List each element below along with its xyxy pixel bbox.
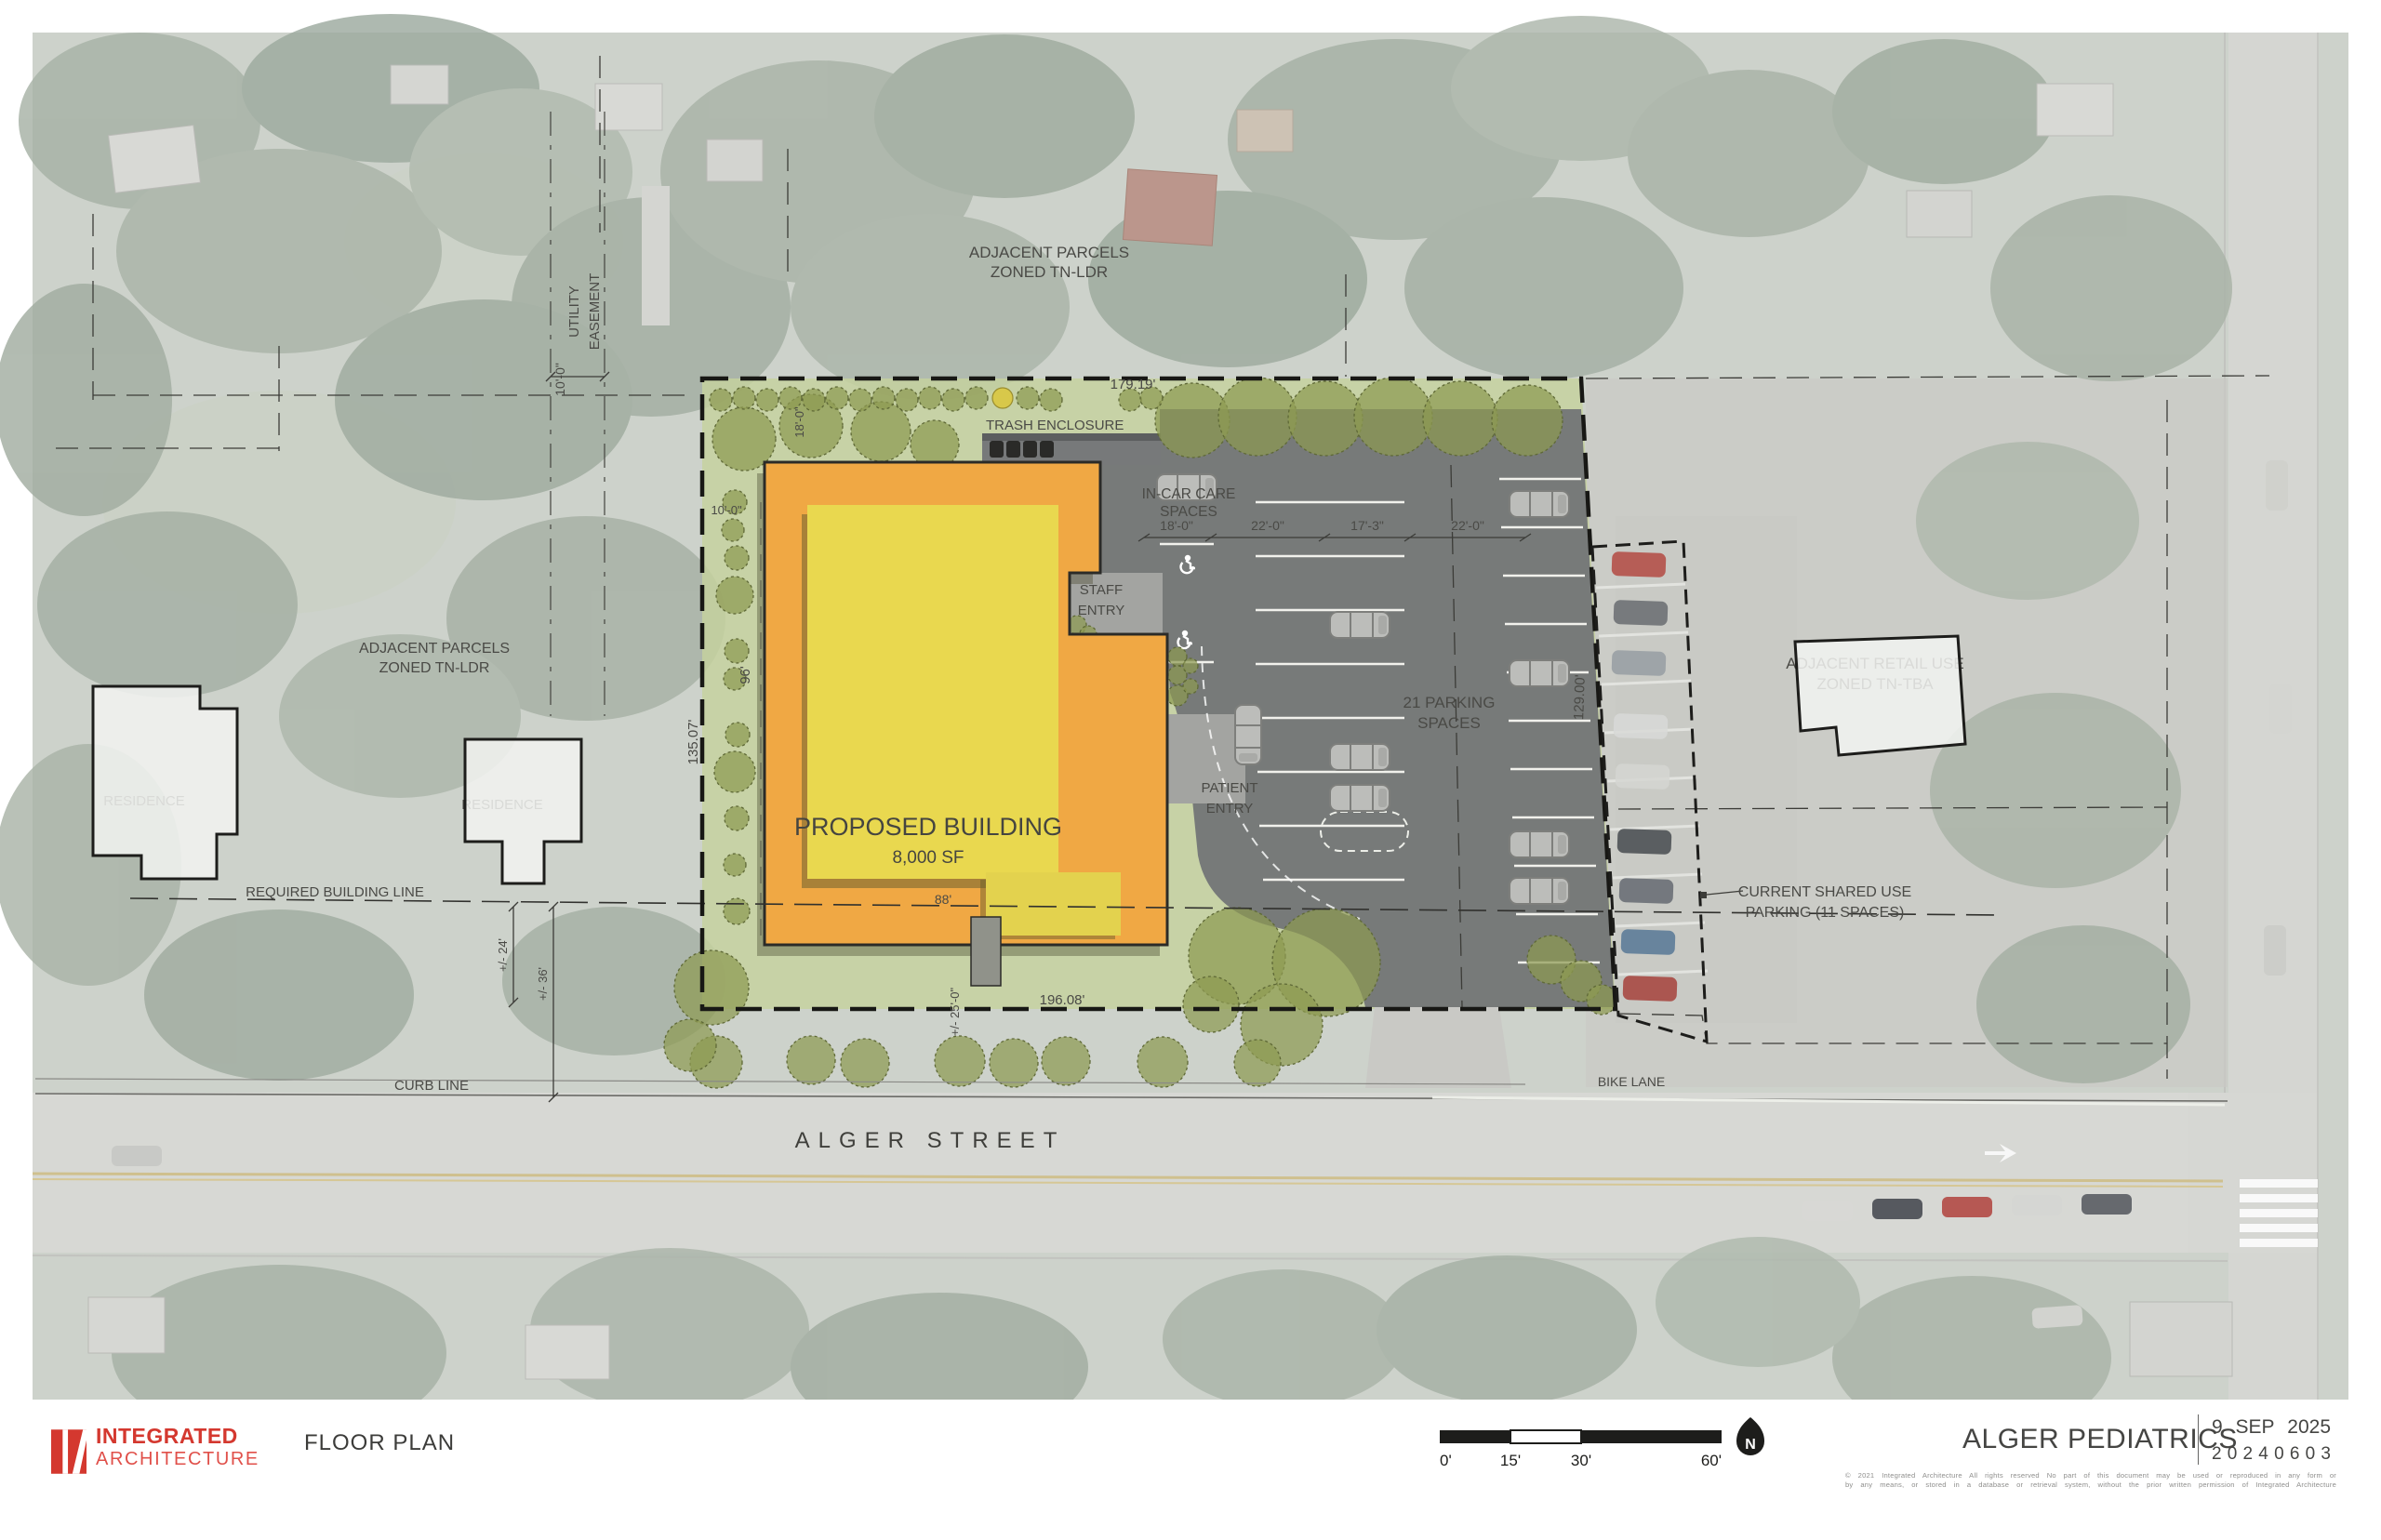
drawing-sheet: ADJACENT PARCELS ZONED TN-LDR UTILITY EA… <box>0 0 2381 1540</box>
dim-building-depth: 96' <box>738 666 753 684</box>
logo-text: INTEGRATED ARCHITECTURE <box>96 1426 259 1468</box>
label-utility-easement-2: EASEMENT <box>587 273 603 351</box>
dim-bottom-boundary: 196.08' <box>1040 992 1085 1008</box>
dim-setback-24: +/- 24' <box>496 938 510 972</box>
dim-street-width: +/- 25'-0" <box>948 987 962 1036</box>
titleblock-divider <box>2198 1414 2199 1465</box>
label-required-building-line: REQUIRED BUILDING LINE <box>246 884 424 900</box>
sheet-title: FLOOR PLAN <box>304 1430 455 1456</box>
copyright-line1: © 2021 Integrated Architecture All right… <box>1845 1471 2336 1480</box>
north-arrow-icon: N <box>1727 1413 1776 1467</box>
label-staff-entry-2: ENTRY <box>1078 603 1125 618</box>
dim-stall-3: 17'-3" <box>1350 518 1384 533</box>
dim-easement-width: 10'-0" <box>552 363 567 396</box>
dim-stall-4: 22'-0" <box>1451 518 1484 533</box>
date-year: 2025 <box>2287 1416 2331 1439</box>
copyright-text: © 2021 Integrated Architecture All right… <box>1845 1471 2336 1491</box>
scale-bar: 0' 15' 30' 60' <box>1439 1423 1736 1479</box>
dim-stall-2: 22'-0" <box>1251 518 1284 533</box>
building-vestibule <box>971 917 1001 986</box>
label-staff-entry-1: STAFF <box>1080 582 1123 598</box>
copyright-line2: by any means, or stored in a database or… <box>1845 1480 2336 1490</box>
hatched-island <box>1321 812 1408 851</box>
site-plan: ADJACENT PARCELS ZONED TN-LDR UTILITY EA… <box>0 0 2381 1400</box>
date-day: 9 <box>2212 1416 2223 1439</box>
label-parking-1: 21 PARKING <box>1403 694 1496 711</box>
title-bar: INTEGRATED ARCHITECTURE FLOOR PLAN 0' 15… <box>0 1400 2381 1540</box>
dim-left-boundary: 135.07' <box>685 719 701 764</box>
label-adjacent-parcels-top-1: ADJACENT PARCELS <box>969 244 1129 261</box>
scale-15: 15' <box>1500 1452 1521 1469</box>
integrated-architecture-logo-icon <box>51 1429 86 1474</box>
label-proposed-building: PROPOSED BUILDING <box>794 813 1062 841</box>
dim-stall-1: 18'-0" <box>1160 518 1193 533</box>
label-alger-street: ALGER STREET <box>795 1128 1066 1153</box>
building-roof-low <box>986 872 1121 936</box>
label-patient-entry-2: ENTRY <box>1206 801 1254 816</box>
logo-line1: INTEGRATED <box>96 1426 259 1447</box>
logo-line2: ARCHITECTURE <box>96 1450 259 1468</box>
date-block: 9 SEP 2025 20240603 <box>2212 1416 2331 1465</box>
dim-building-width: 88' <box>935 892 951 907</box>
label-building-area: 8,000 SF <box>892 848 964 868</box>
scale-0: 0' <box>1440 1452 1452 1469</box>
label-trash-enclosure: TRASH ENCLOSURE <box>986 418 1124 433</box>
dim-top-boundary: 179.19' <box>1111 377 1156 392</box>
date-month: SEP <box>2235 1416 2274 1439</box>
driveway-apron <box>1365 1007 1511 1088</box>
scale-30: 30' <box>1571 1452 1591 1469</box>
label-curb-line: CURB LINE <box>394 1078 469 1094</box>
scale-60: 60' <box>1701 1452 1722 1469</box>
dim-right-boundary: 129.00' <box>1571 674 1589 720</box>
hatched-access-aisle <box>1137 586 1217 621</box>
label-adjacent-parcels-top-2: ZONED TN-LDR <box>991 263 1108 281</box>
accent-shrub <box>992 388 1013 408</box>
dim-tree-spacing: 18'-0" <box>792 406 806 438</box>
residence-left-outline <box>93 686 237 879</box>
label-adjacent-parcels-left-2: ZONED TN-LDR <box>379 660 490 676</box>
project-number: 20240603 <box>2212 1444 2331 1465</box>
project-name: ALGER PEDIATRICS <box>1962 1424 2238 1455</box>
label-adjacent-parcels-left-1: ADJACENT PARCELS <box>359 641 510 657</box>
label-utility-easement-1: UTILITY <box>566 285 582 338</box>
label-patient-entry-1: PATIENT <box>1201 780 1257 796</box>
label-shared-parking-2: PARKING (11 SPACES) <box>1746 905 1905 921</box>
label-bike-lane: BIKE LANE <box>1598 1074 1665 1089</box>
label-in-car-care-1: IN-CAR CARE <box>1142 486 1236 502</box>
dim-side-setback: 10'-0" <box>711 503 742 517</box>
north-label: N <box>1745 1437 1756 1453</box>
label-parking-2: SPACES <box>1417 714 1481 732</box>
label-shared-parking-1: CURRENT SHARED USE <box>1738 884 1911 900</box>
dim-setback-36: +/- 36' <box>536 967 550 1001</box>
